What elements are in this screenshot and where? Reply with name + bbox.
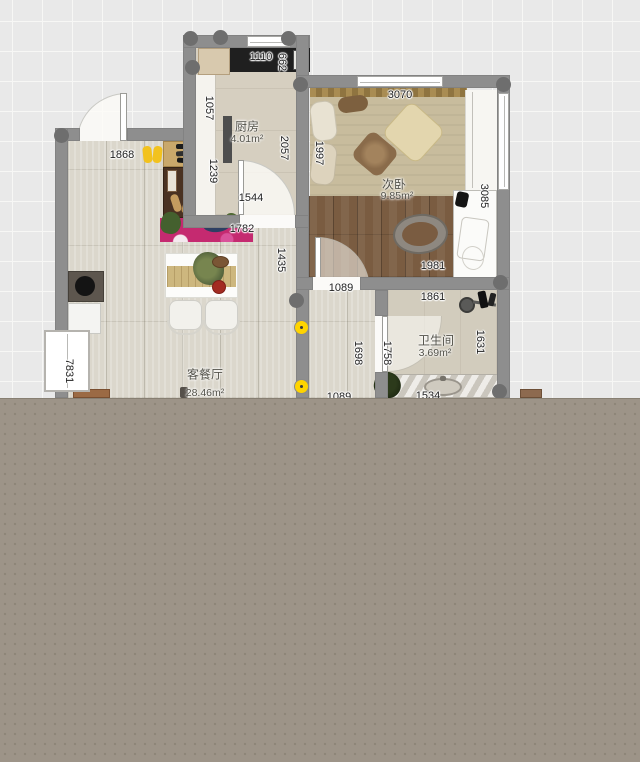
cabinet-door-icon [167, 170, 177, 192]
bottom-overlay-panel [0, 398, 640, 762]
wall [375, 290, 388, 316]
room-label-kitchen: 厨房 [235, 118, 259, 135]
floorplan-canvas[interactable]: 厨房 4.01m² 次卧 9.85m² 卫生间 3.69m² 客餐厅 28.46… [0, 0, 640, 762]
room-label-living: 客餐厅 [187, 366, 223, 383]
dim-label: 1981 [421, 260, 445, 272]
dim-label: 1239 [207, 159, 219, 183]
column [185, 60, 200, 75]
dim-label: 1782 [230, 223, 254, 235]
column [289, 293, 304, 308]
column [213, 30, 228, 45]
wall [295, 215, 309, 228]
entry-door-leaf[interactable] [120, 93, 127, 141]
column [496, 77, 511, 92]
room-label-bathroom: 卫生间 [418, 332, 454, 349]
wall [375, 372, 388, 398]
dim-label: 662 [276, 53, 288, 71]
kitchen-door-leaf[interactable] [238, 160, 244, 215]
column [54, 128, 69, 143]
dim-label: 1435 [275, 248, 287, 272]
dim-label: 3070 [388, 89, 412, 101]
wall [296, 277, 313, 290]
bedroom-side-window[interactable] [498, 93, 509, 190]
dim-label: 2057 [278, 136, 290, 160]
dim-label: 1698 [352, 341, 364, 365]
dim-label: 1868 [110, 149, 134, 161]
bowl-icon [212, 280, 226, 294]
dim-label: 1861 [421, 291, 445, 303]
dish-icon [212, 256, 229, 268]
corner-cabinet[interactable] [198, 48, 230, 75]
dim-label: 7831 [63, 359, 75, 383]
slippers-icon [142, 146, 153, 164]
dim-label: 1089 [329, 282, 353, 294]
column [281, 31, 296, 46]
bowl-icon [75, 276, 95, 296]
sideboard-small[interactable] [520, 389, 542, 398]
dim-label: 1758 [381, 341, 393, 365]
dim-label: 3085 [478, 184, 490, 208]
curtain-strip [465, 90, 497, 190]
room-area-kitchen: 4.01m² [231, 133, 264, 145]
column [183, 31, 198, 46]
column [493, 275, 508, 290]
dim-label: 1544 [239, 192, 263, 204]
wall [360, 277, 510, 290]
dim-label: 1997 [313, 141, 325, 165]
room-area-bedroom: 9.85m² [381, 190, 414, 202]
power-point-marker-icon[interactable] [294, 320, 309, 335]
pillow-icon [309, 100, 339, 143]
room-area-bathroom: 3.69m² [419, 347, 452, 359]
power-point-marker-icon[interactable] [294, 379, 309, 394]
curtain-rod-icon [472, 92, 473, 188]
dim-label: 1057 [203, 96, 215, 120]
column [492, 384, 507, 399]
dim-label: 1631 [474, 330, 486, 354]
faucet-icon [440, 376, 446, 381]
bedroom-window[interactable] [357, 76, 443, 87]
column [293, 77, 308, 92]
hallway-floor [309, 290, 375, 398]
dim-label: 1110 [250, 51, 273, 63]
